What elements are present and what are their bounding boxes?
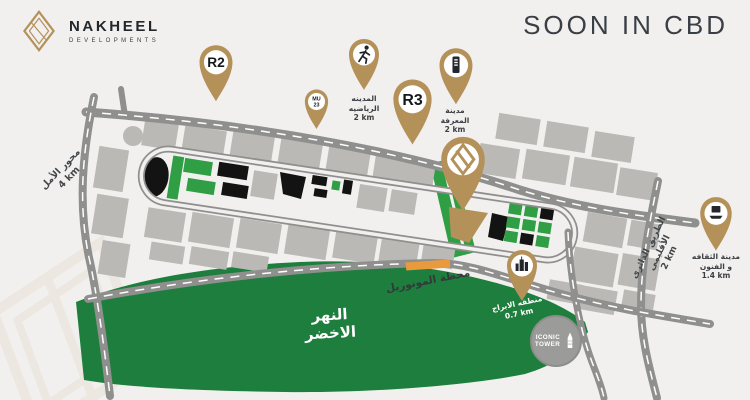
pin-mu23: MU 23 bbox=[301, 88, 332, 130]
nakheel-logo-icon bbox=[18, 8, 60, 54]
pin-sports-city bbox=[344, 37, 384, 91]
tower-icon bbox=[563, 330, 577, 352]
pin-project bbox=[434, 134, 492, 212]
label-green-river: النهر الاخضر bbox=[289, 304, 371, 344]
label-culture-city: مدينة الثقافه و الفنون 1.4 km bbox=[689, 252, 743, 281]
label-knowledge-city: مدينة المعرفة 2 km bbox=[427, 106, 483, 135]
monorail-station-segment bbox=[406, 264, 450, 267]
svg-text:R2: R2 bbox=[207, 55, 225, 70]
project-plot bbox=[449, 207, 488, 243]
brand-logo: NAKHEEL DEVELOPMENTS bbox=[18, 8, 160, 54]
svg-text:23: 23 bbox=[313, 103, 319, 109]
svg-text:MU: MU bbox=[312, 96, 321, 102]
pin-knowledge-city bbox=[434, 46, 478, 105]
svg-text:R3: R3 bbox=[402, 92, 422, 109]
poster: NAKHEEL DEVELOPMENTS SOON IN CBD R2 MU 2… bbox=[0, 0, 750, 400]
iconic-tower-badge: ICONIC TOWER bbox=[530, 315, 582, 367]
label-sports-city: المدينه الرياضيه 2 km bbox=[334, 94, 394, 123]
brand-name: NAKHEEL bbox=[69, 18, 160, 35]
parcel-grid bbox=[504, 203, 555, 249]
brand-subtitle: DEVELOPMENTS bbox=[69, 38, 160, 44]
building-icon bbox=[452, 56, 459, 72]
pin-culture-city bbox=[695, 195, 737, 252]
pin-r2: R2 bbox=[194, 43, 238, 102]
tagline: SOON IN CBD bbox=[523, 10, 728, 41]
